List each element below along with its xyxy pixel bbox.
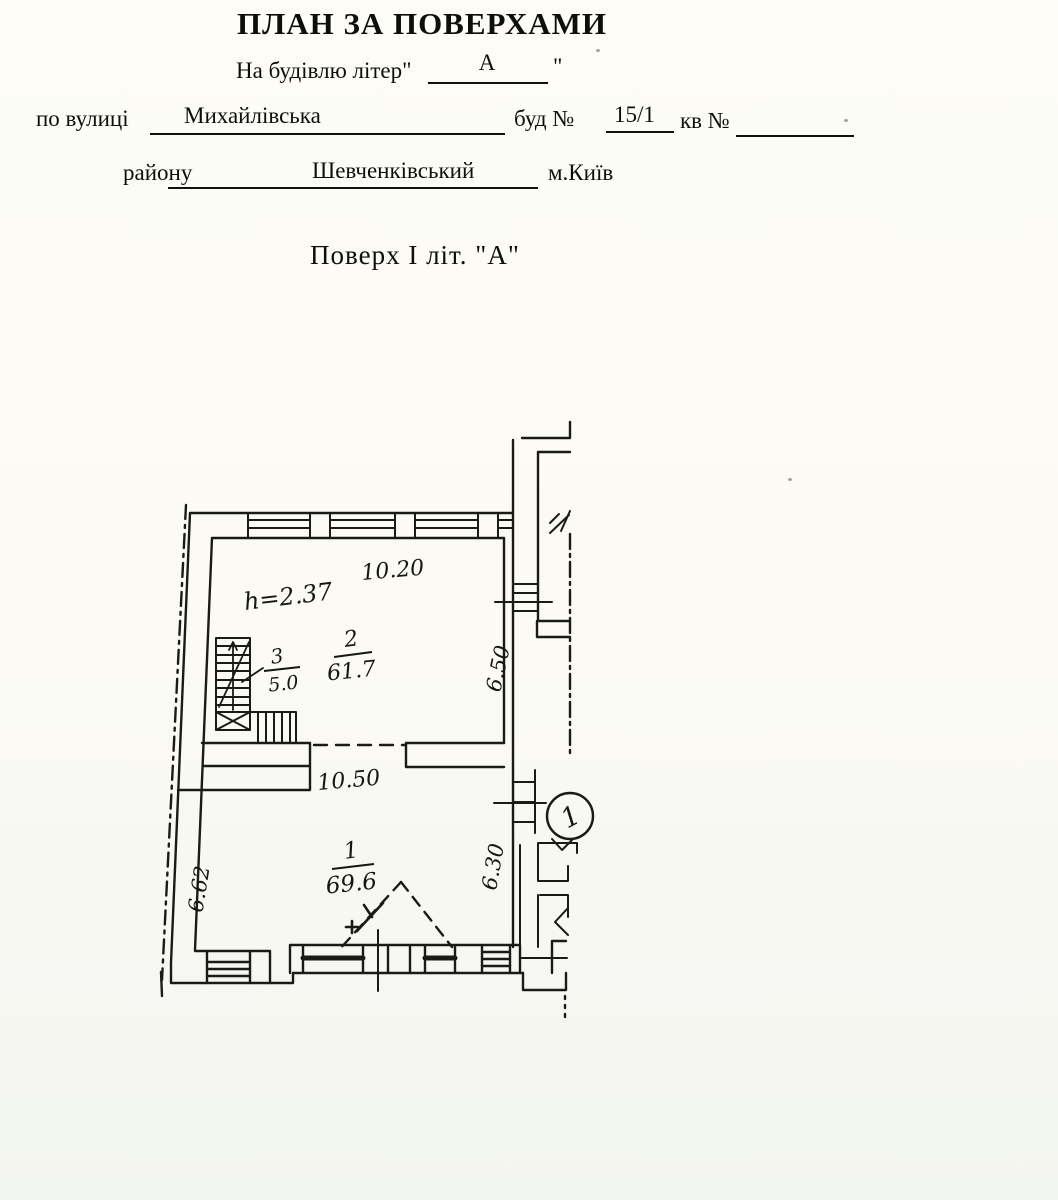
building-letter-close-quote: " <box>553 54 562 80</box>
floor-heading: Поверх I літ. "А" <box>310 240 550 271</box>
room2-number: 2 <box>341 626 359 653</box>
room3-area: 5.0 <box>267 672 299 697</box>
diagonal-marks <box>346 903 383 933</box>
room1-area: 69.6 <box>325 868 379 899</box>
street-value: Михайлівська <box>184 103 321 129</box>
room1-number: 1 <box>342 837 360 865</box>
district-underline <box>168 187 538 189</box>
stair-direction-arrow <box>219 642 249 710</box>
scan-speck <box>596 49 600 52</box>
apt-label: кв № <box>680 108 730 134</box>
street-underline <box>150 133 505 135</box>
site-boundary-tick <box>161 972 162 996</box>
room3-number: 3 <box>269 643 285 669</box>
bottom-right-steps <box>523 941 566 990</box>
house-label: буд № <box>514 106 574 132</box>
apt-underline <box>736 135 854 137</box>
bottom-wall <box>195 945 523 983</box>
building-letter-label: На будівлю літер" <box>236 58 412 84</box>
city-value: м.Київ <box>548 160 613 186</box>
house-underline <box>606 131 674 133</box>
dimension-top: 10.20 <box>360 556 425 586</box>
scanned-floor-plan-document: ПЛАН ЗА ПОВЕРХАМИ На будівлю літер" А " … <box>0 0 1058 1200</box>
building-letter-value: А <box>428 50 546 76</box>
scan-speck <box>788 478 792 481</box>
scan-speck <box>844 119 848 122</box>
house-value: 15/1 <box>614 102 655 128</box>
district-value: Шевченківський <box>312 158 474 184</box>
floor-plan-drawing: h=2.37 10.20 10.50 6.50 6.30 6.62 2 61.7… <box>140 400 640 1040</box>
dimension-right-upper: 6.50 <box>482 643 515 694</box>
district-label: району <box>123 160 192 186</box>
street-label: по вулиці <box>36 106 129 132</box>
building-letter-underline <box>428 82 548 84</box>
entrance-porch <box>494 770 572 962</box>
height-note: h=2.37 <box>242 577 334 616</box>
break-mark <box>550 511 570 533</box>
dimension-left: 6.62 <box>184 864 215 914</box>
dashed-diagonal-right <box>401 882 452 947</box>
dimension-middle: 10.50 <box>316 766 381 796</box>
page-title: ПЛАН ЗА ПОВЕРХАМИ <box>226 6 618 42</box>
entrance-number: 1 <box>556 800 586 835</box>
dimension-right-lower: 6.30 <box>477 842 509 892</box>
top-wall-windows <box>248 513 513 538</box>
adjacent-structure <box>522 422 570 637</box>
right-annex-rooms <box>538 843 577 947</box>
room2-area: 61.7 <box>326 657 377 687</box>
